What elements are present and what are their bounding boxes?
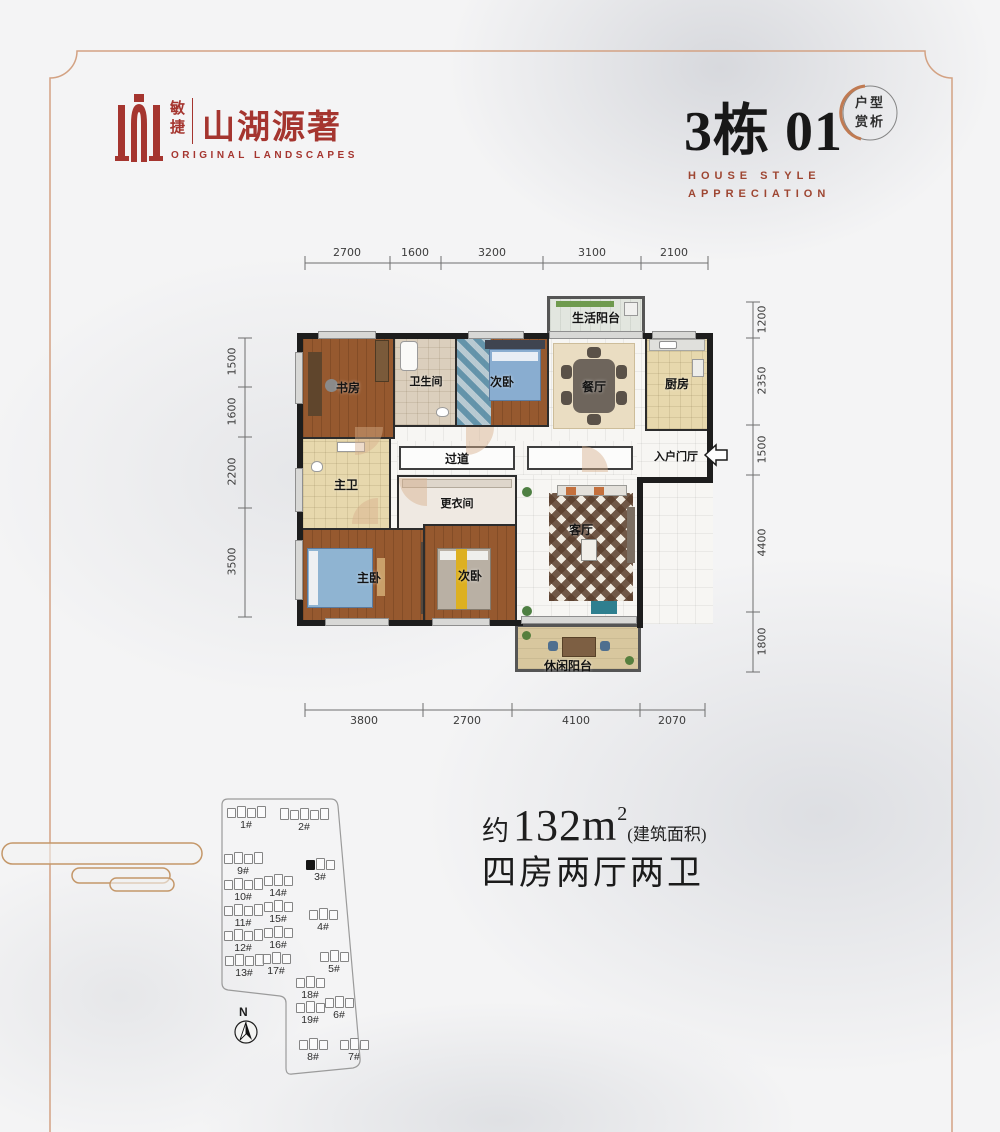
site-building-highlighted: 3# — [296, 858, 344, 883]
tv-cabinet — [627, 507, 635, 563]
dim-left-1: 1500 — [226, 340, 239, 384]
building-shape — [224, 904, 263, 916]
room-label: 餐厅 — [582, 378, 606, 395]
dim-right-5: 1800 — [756, 620, 769, 664]
site-building: 1# — [220, 806, 272, 831]
site-building: 8# — [290, 1038, 336, 1063]
building-label: 5# — [328, 963, 340, 975]
room-label: 过道 — [445, 450, 469, 467]
toilet — [436, 407, 449, 417]
window — [295, 468, 303, 512]
window — [521, 616, 637, 624]
building-label: 14# — [269, 887, 287, 899]
building-label: 12# — [234, 942, 252, 954]
brand-emblem-icon — [114, 92, 164, 166]
chair — [616, 391, 627, 405]
area-superscript: 2 — [617, 803, 627, 825]
building-shape — [224, 852, 263, 864]
bookshelf — [375, 340, 389, 382]
room-leisure-balcony: 休闲阳台 — [515, 624, 641, 672]
cushion — [566, 487, 576, 495]
window — [295, 540, 303, 600]
area-note: (建筑面积) — [627, 825, 706, 844]
dim-left-2: 1600 — [226, 390, 239, 434]
room-label: 书房 — [336, 379, 360, 396]
building-label: 7# — [348, 1051, 360, 1063]
brand-small-name: 敏捷 — [170, 100, 187, 138]
corridor-ceiling-right — [527, 446, 633, 470]
room-dining: 餐厅 — [549, 339, 639, 433]
plant — [522, 631, 531, 640]
site-building: 4# — [300, 908, 346, 933]
desk — [308, 352, 322, 416]
compass-icon — [235, 1021, 257, 1043]
dim-bottom-3: 4100 — [546, 714, 606, 727]
sofa — [557, 485, 627, 496]
pillows — [492, 352, 538, 361]
dim-top-3: 3200 — [462, 246, 522, 259]
pillows — [309, 551, 318, 605]
building-label: 8# — [307, 1051, 319, 1063]
building-label: 3# — [314, 871, 326, 883]
wall-entry-bottom — [643, 477, 713, 483]
building-shape — [325, 996, 354, 1008]
site-building: 13# — [218, 954, 270, 979]
dim-top-5: 2100 — [644, 246, 704, 259]
badge-text: 户型 赏析 — [843, 94, 897, 132]
dim-bottom-4: 2070 — [642, 714, 702, 727]
site-building: 2# — [276, 808, 332, 833]
window — [549, 331, 643, 339]
plant — [522, 606, 532, 616]
chair — [548, 641, 558, 651]
window — [432, 618, 490, 626]
dim-left-3: 2200 — [226, 450, 239, 494]
dim-top-1: 2700 — [317, 246, 377, 259]
building-shape — [309, 908, 338, 920]
room-entry: 入户门厅 — [645, 435, 707, 477]
building-label: 6# — [333, 1009, 345, 1021]
brand-divider — [192, 98, 193, 144]
building-label: 9# — [237, 865, 249, 877]
tea-table — [562, 637, 596, 657]
building-shape — [224, 878, 263, 890]
fridge — [692, 359, 704, 377]
planter — [556, 301, 614, 307]
site-building: 5# — [312, 950, 356, 975]
building-label: 10# — [234, 891, 252, 903]
building-shape — [340, 1038, 369, 1050]
subtitle-line2: APPRECIATION — [688, 188, 830, 200]
wall-right-upper — [707, 333, 713, 483]
mosaic-floor — [457, 337, 491, 425]
room-label: 生活阳台 — [572, 309, 620, 326]
unit-title: 3栋 01 — [684, 86, 843, 167]
window — [652, 331, 696, 339]
dim-top-4: 3100 — [562, 246, 622, 259]
badge-line1: 户型 — [843, 94, 897, 113]
chair — [587, 414, 601, 425]
building-shape — [306, 858, 335, 870]
dim-top-2: 1600 — [385, 246, 445, 259]
building-shape — [227, 806, 266, 818]
room-living: 客厅 — [519, 483, 637, 620]
room-master-bedroom: 主卧 — [301, 528, 437, 626]
accent-rug — [591, 601, 617, 614]
toilet — [311, 461, 323, 472]
room-study: 书房 — [301, 335, 395, 439]
dim-left-4: 3500 — [226, 540, 239, 584]
badge-line2: 赏析 — [843, 113, 897, 132]
building-shape — [320, 950, 349, 962]
dim-right-1: 1200 — [756, 298, 769, 342]
window — [318, 331, 376, 339]
site-building: 7# — [332, 1038, 376, 1063]
brochure-page: 敏捷 山湖源著 ORIGINAL LANDSCAPES 3栋 01 HOUSE … — [0, 0, 1000, 1132]
building-shape — [224, 929, 263, 941]
chair — [561, 365, 572, 379]
washer — [624, 302, 638, 316]
chair — [561, 391, 572, 405]
window — [325, 618, 389, 626]
dim-right-3: 1500 — [756, 428, 769, 472]
bed-headboard — [485, 340, 545, 349]
brand-name-en: ORIGINAL LANDSCAPES — [171, 150, 358, 161]
room-label: 卫生间 — [410, 373, 443, 389]
building-label: 15# — [269, 913, 287, 925]
area-text: 约 132m2(建筑面积) — [482, 800, 707, 851]
room-kitchen: 厨房 — [645, 335, 709, 431]
room-label: 次卧 — [490, 373, 514, 390]
building-label: 1# — [240, 819, 252, 831]
building-label: 13# — [235, 967, 253, 979]
brand-name: 山湖源著 — [202, 100, 342, 148]
plant — [522, 487, 532, 497]
chair — [616, 365, 627, 379]
room-label: 次卧 — [458, 567, 482, 584]
sink — [659, 341, 677, 349]
room-label: 入户门厅 — [654, 448, 698, 464]
plant — [625, 656, 634, 665]
subtitle-line1: HOUSE STYLE — [688, 170, 821, 182]
window — [295, 352, 303, 404]
room-bedroom-bottom: 次卧 — [423, 524, 517, 626]
cloud-motif-icon — [2, 843, 202, 891]
dim-right-2: 2350 — [756, 359, 769, 403]
building-shape — [299, 1038, 328, 1050]
dim-bottom-1: 3800 — [334, 714, 394, 727]
room-label: 厨房 — [665, 375, 689, 392]
window — [468, 331, 524, 339]
counter — [649, 339, 705, 351]
room-label: 客厅 — [569, 521, 593, 538]
building-shape — [296, 976, 325, 988]
compass-label: N — [239, 1005, 248, 1019]
site-building: 6# — [316, 996, 362, 1021]
dim-bottom-2: 2700 — [437, 714, 497, 727]
coffee-table — [581, 539, 597, 561]
building-label: 16# — [269, 939, 287, 951]
area-value: 132m — [513, 801, 617, 850]
building-label: 4# — [317, 921, 329, 933]
site-building: 12# — [218, 929, 268, 954]
room-label: 主卫 — [334, 476, 358, 493]
bathtub — [400, 341, 418, 371]
building-shape — [225, 954, 264, 966]
room-label: 休闲阳台 — [544, 657, 592, 674]
cushion — [594, 487, 604, 495]
corridor-ceiling-left: 过道 — [399, 446, 515, 470]
room-bedroom-top: 次卧 — [455, 335, 549, 427]
layout-text: 四房两厅两卫 — [482, 845, 704, 894]
chair — [600, 641, 610, 651]
building-label: 2# — [298, 821, 310, 833]
chair — [587, 347, 601, 358]
building-label: 11# — [235, 917, 252, 929]
dim-right-4: 4400 — [756, 521, 769, 565]
room-label: 更衣间 — [441, 495, 474, 511]
room-label: 主卧 — [357, 569, 381, 586]
room-bathroom: 卫生间 — [393, 335, 459, 427]
building-shape — [280, 808, 329, 820]
area-prefix: 约 — [482, 816, 509, 846]
wall-living-right — [637, 477, 643, 628]
